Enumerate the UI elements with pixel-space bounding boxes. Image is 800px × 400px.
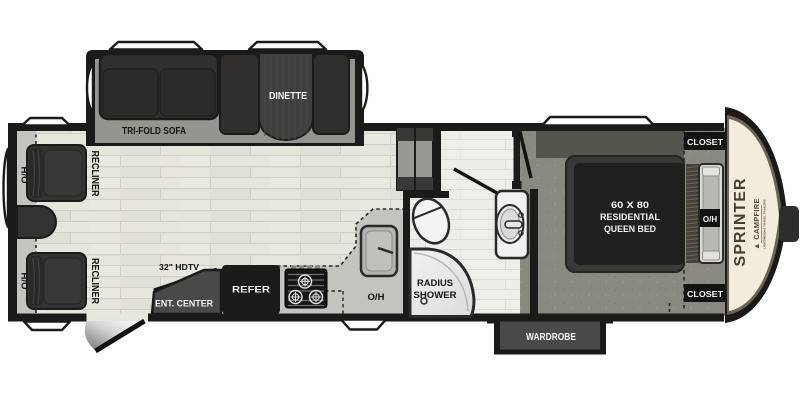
svg-text:RESIDENTIAL: RESIDENTIAL [600, 212, 660, 222]
svg-text:O/H: O/H [703, 215, 717, 224]
svg-text:SPRINTER: SPRINTER [732, 178, 749, 267]
svg-text:TRI-FOLD SOFA: TRI-FOLD SOFA [122, 125, 186, 137]
svg-text:QUEEN BED: QUEEN BED [604, 224, 656, 234]
svg-text:DINETTE: DINETTE [269, 90, 307, 102]
svg-text:SHOWER: SHOWER [414, 290, 458, 300]
svg-text:WARDROBE: WARDROBE [526, 332, 576, 343]
svg-text:ENT. CENTER: ENT. CENTER [155, 299, 213, 309]
svg-text:32" HDTV: 32" HDTV [159, 262, 199, 272]
svg-text:▲ CAMPFIRE: ▲ CAMPFIRE [752, 198, 761, 250]
svg-text:LIGHTWEIGHT TRAVEL TRAILERS: LIGHTWEIGHT TRAVEL TRAILERS [763, 199, 767, 248]
svg-text:CLOSET: CLOSET [687, 137, 724, 147]
svg-text:CLOSET: CLOSET [687, 289, 724, 299]
svg-text:RECLINER: RECLINER [89, 258, 100, 305]
svg-text:O/H: O/H [368, 292, 385, 303]
svg-text:RADIUS: RADIUS [417, 278, 453, 288]
svg-text:RECLINER: RECLINER [89, 151, 100, 198]
svg-text:REFER: REFER [232, 285, 271, 295]
svg-text:60 X 80: 60 X 80 [611, 200, 649, 210]
